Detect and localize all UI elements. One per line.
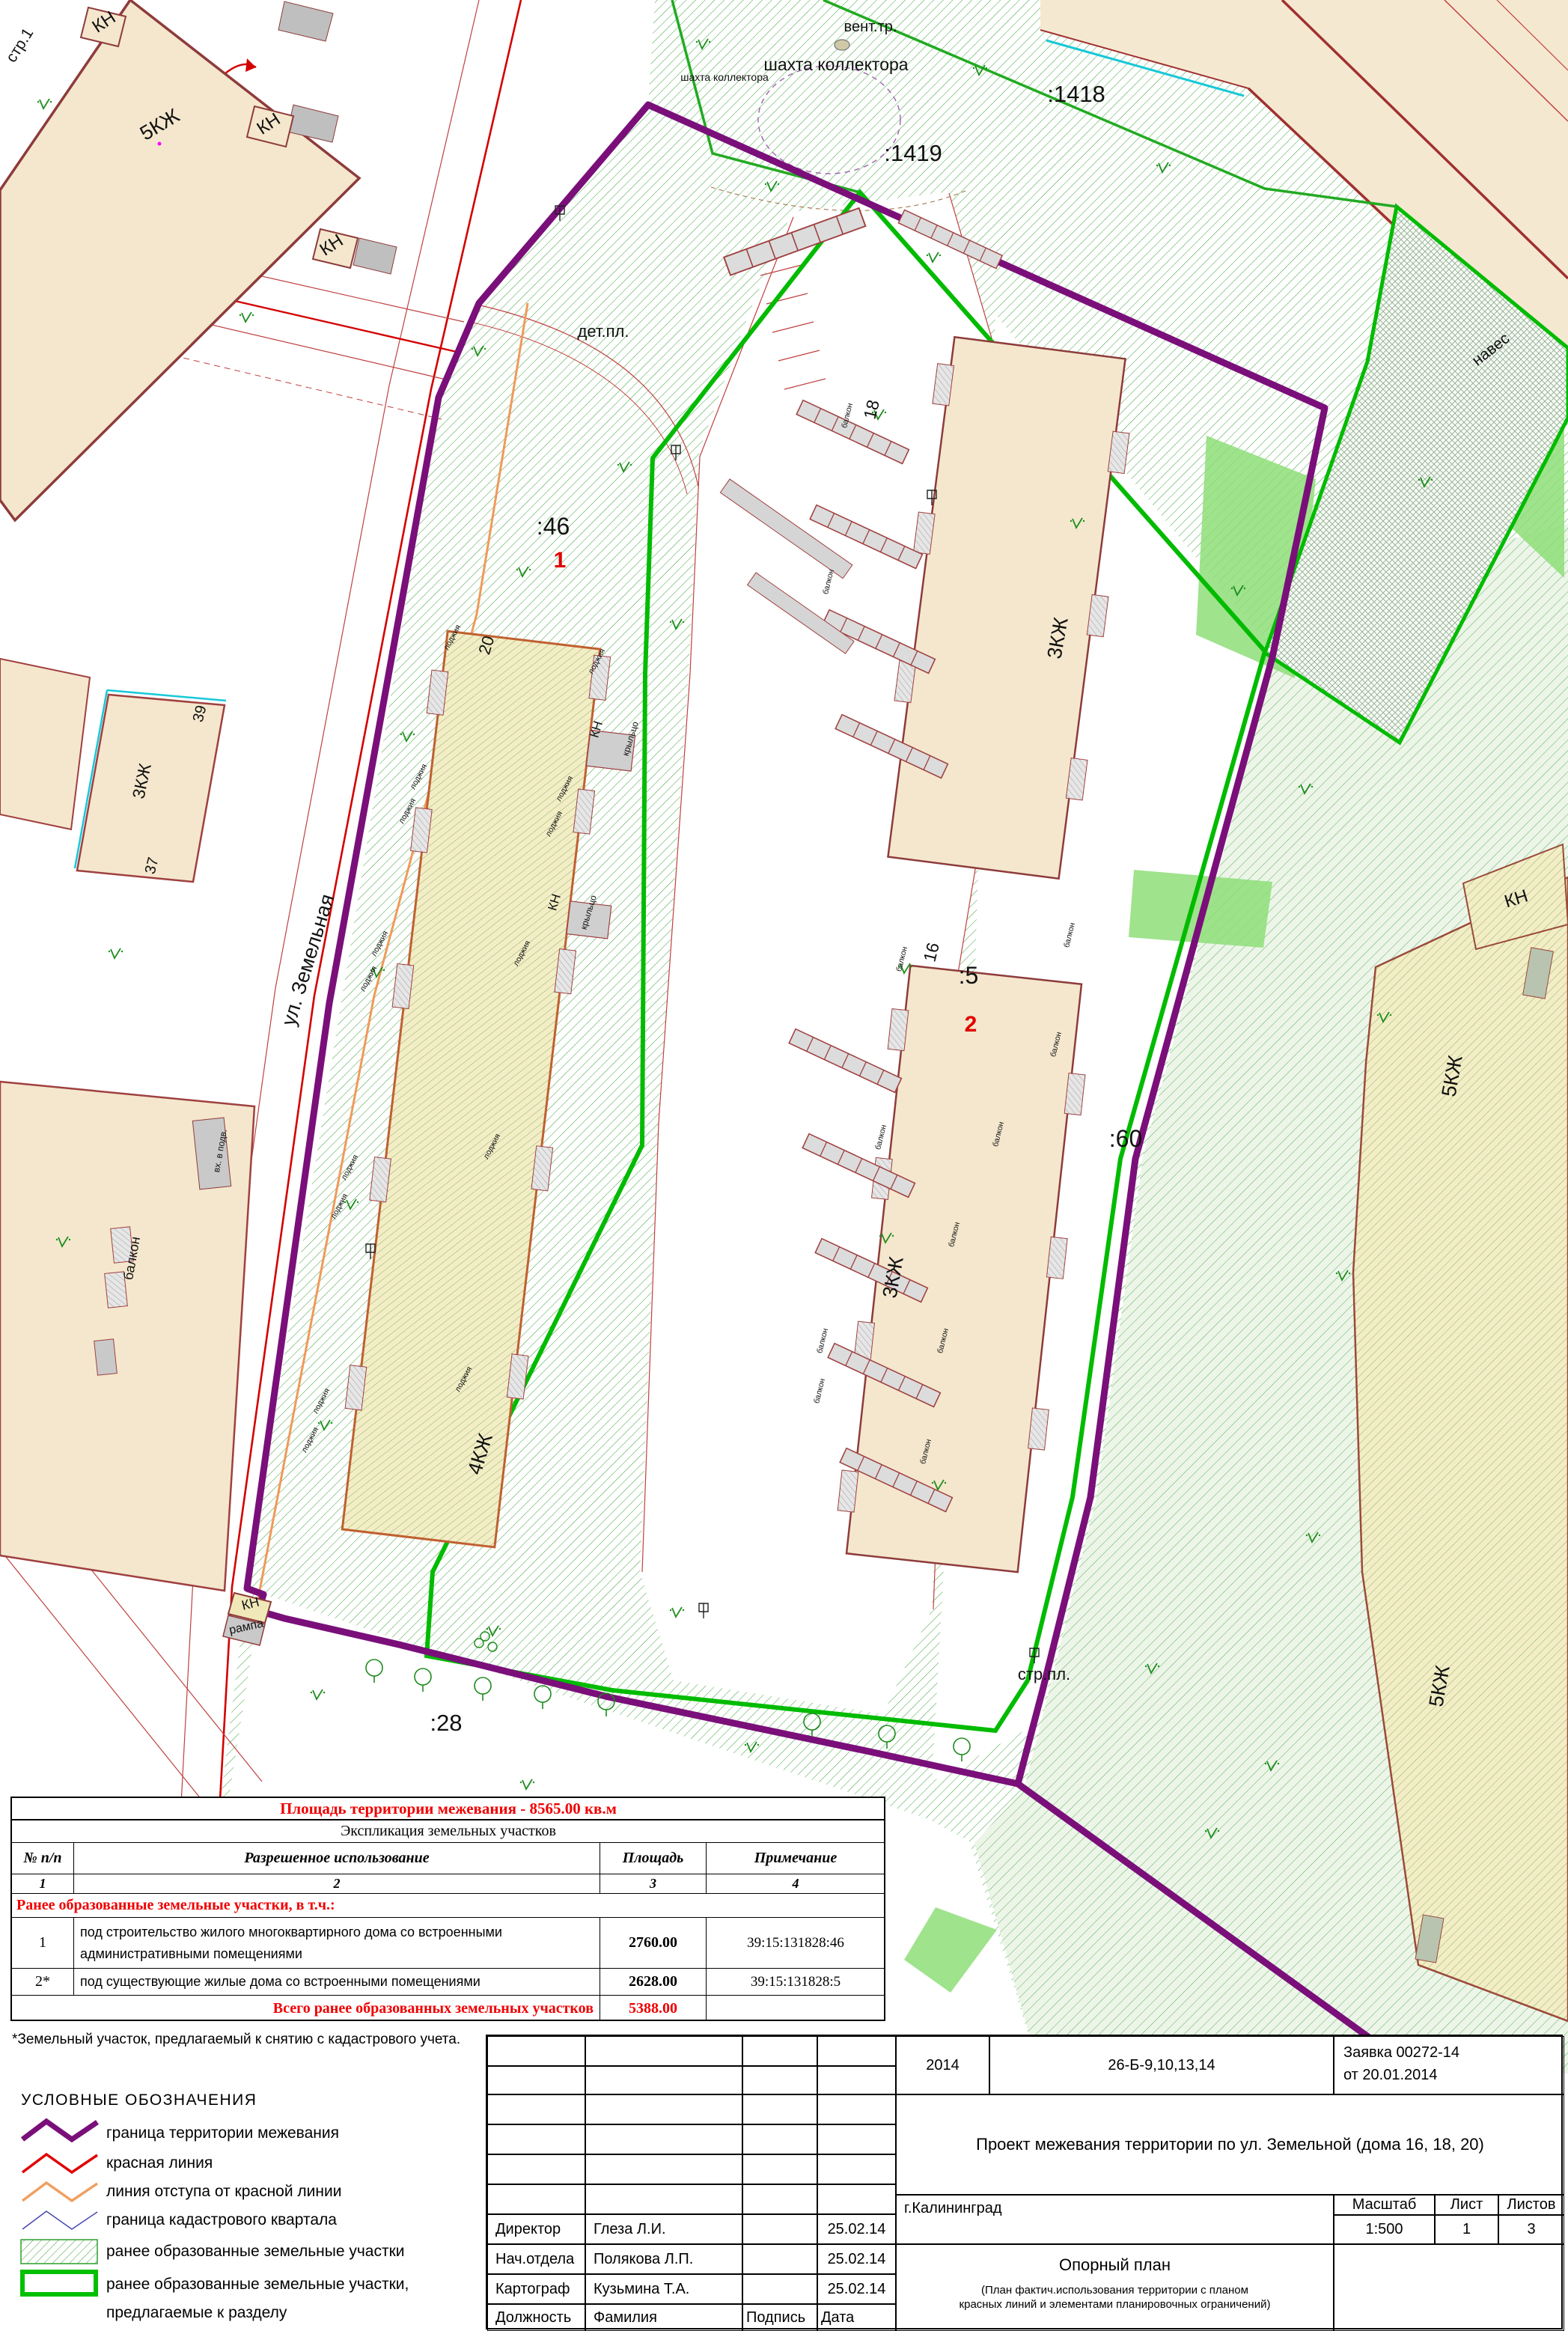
doc-sub2: красных линий и элементами планировочных… xyxy=(960,2298,1271,2312)
signer-name: Полякова Л.П. xyxy=(585,2244,742,2274)
row2-use: под существующие жилые дома со встроенны… xyxy=(74,1969,600,1996)
legend-item-division-plots: ранее образованные земельные участки, xyxy=(15,2268,479,2301)
tb-doc: Опорный план (План фактич.использования … xyxy=(896,2244,1334,2331)
footer-role: Должность xyxy=(487,2304,585,2331)
map-label: 2 xyxy=(965,1012,977,1037)
tb-empty xyxy=(817,2184,896,2214)
map-label: :5 xyxy=(959,962,979,989)
quarter-boundary-swatch xyxy=(19,2205,102,2235)
signer-role: Картограф xyxy=(487,2274,585,2304)
signer-name: Глеза Л.И. xyxy=(585,2214,742,2244)
legend-item-formed-plots: ранее образованные земельные участки xyxy=(15,2237,479,2267)
tb-empty xyxy=(585,2036,742,2066)
request-line2: от 20.01.2014 xyxy=(1343,2064,1438,2086)
footer-name: Фамилия xyxy=(585,2304,742,2331)
legend: УСЛОВНЫЕ ОБОЗНАЧЕНИЯ граница территории … xyxy=(15,2088,479,2331)
tb-empty xyxy=(487,2124,585,2154)
tb-empty xyxy=(817,2036,896,2066)
row1-note: 39:15:131828:46 xyxy=(707,1918,885,1969)
tb-code: 26-Б-9,10,13,14 xyxy=(989,2036,1334,2094)
legend-item-redline: красная линия xyxy=(15,2148,479,2178)
tb-empty xyxy=(585,2094,742,2124)
legend-title: УСЛОВНЫЕ ОБОЗНАЧЕНИЯ xyxy=(21,2091,257,2109)
signer-sign xyxy=(742,2274,817,2304)
row2-num: 2* xyxy=(12,1969,74,1996)
row1-num: 1 xyxy=(12,1918,74,1969)
tb-empty xyxy=(817,2094,896,2124)
total-label: Всего ранее образованных земельных участ… xyxy=(12,1996,600,2021)
row1-use: под строительство жилого многоквартирног… xyxy=(74,1918,600,1969)
signer-sign xyxy=(742,2214,817,2244)
cadastral-plan-sheet: { "map": { "labels": [ {"t":"стр.1","x":… xyxy=(0,0,1568,2331)
tb-empty xyxy=(742,2124,817,2154)
tb-empty xyxy=(585,2154,742,2184)
map-label: стр.пл. xyxy=(1018,1665,1070,1683)
map-label: стр.1 xyxy=(3,25,37,66)
tb-project-title: Проект межевания территории по ул. Земел… xyxy=(896,2094,1564,2195)
legend-item-setback: линия отступа от красной линии xyxy=(15,2177,479,2207)
tb-empty xyxy=(742,2154,817,2184)
legend-item-quarter: граница кадастрового квартала xyxy=(15,2205,479,2235)
land-plots-table: Площадь территории межевания - 8565.00 к… xyxy=(10,1797,885,2021)
col-num-3: 3 xyxy=(600,1874,707,1894)
col-header-area: Площадь xyxy=(600,1843,707,1874)
legend-item-territory: граница территории межевания xyxy=(15,2115,479,2151)
tb-empty xyxy=(487,2154,585,2184)
tb-sheets-value: 3 xyxy=(1498,2215,1564,2244)
signer-role: Директор xyxy=(487,2214,585,2244)
tb-sheet-label: Лист xyxy=(1435,2195,1498,2215)
signer-name: Кузьмина Т.А. xyxy=(585,2274,742,2304)
total-area: 5388.00 xyxy=(600,1996,707,2021)
signer-date: 25.02.14 xyxy=(817,2244,896,2274)
signer-date: 25.02.14 xyxy=(817,2274,896,2304)
tb-empty xyxy=(585,2184,742,2214)
signer-date: 25.02.14 xyxy=(817,2214,896,2244)
tb-empty xyxy=(487,2066,585,2094)
tb-empty xyxy=(742,2094,817,2124)
doc-sub1: (План фактич.использования территории с … xyxy=(981,2284,1248,2298)
map-label: дет.пл. xyxy=(578,322,629,341)
tb-request: Заявка 00272-14 от 20.01.2014 xyxy=(1334,2036,1564,2094)
request-line1: Заявка 00272-14 xyxy=(1343,2041,1459,2064)
tb-sheet-value: 1 xyxy=(1435,2215,1498,2244)
col-header-note: Примечание xyxy=(707,1843,885,1874)
territory-boundary-swatch xyxy=(19,2115,102,2145)
table-subtitle: Экспликация земельных участков xyxy=(12,1820,885,1843)
signer-sign xyxy=(742,2244,817,2274)
map-label: 1 xyxy=(554,548,567,573)
setback-line-swatch xyxy=(19,2177,102,2207)
table-footnote: *Земельный участок, предлагаемый к сняти… xyxy=(12,2032,460,2048)
map-label: :1419 xyxy=(884,140,942,166)
row1-area: 2760.00 xyxy=(600,1918,707,1969)
tb-scale-value: 1:500 xyxy=(1334,2215,1435,2244)
table-title: Площадь территории межевания - 8565.00 к… xyxy=(12,1798,885,1820)
section-row: Ранее образованные земельные участки, в … xyxy=(12,1894,885,1918)
map-label: вент.тр. xyxy=(844,19,897,35)
tb-empty xyxy=(585,2124,742,2154)
map-label: шахта коллектора xyxy=(680,71,769,83)
col-num-1: 1 xyxy=(12,1874,74,1894)
tb-sheets-label: Листов xyxy=(1498,2195,1564,2215)
footer-date: Дата xyxy=(817,2304,896,2331)
tb-empty xyxy=(817,2066,896,2094)
tb-empty xyxy=(585,2066,742,2094)
division-plots-swatch xyxy=(19,2268,102,2298)
tb-year: 2014 xyxy=(896,2036,989,2094)
legend-item-division-plots-line2: предлагаемые к разделу xyxy=(106,2304,287,2322)
tb-empty xyxy=(487,2094,585,2124)
map-label: :60 xyxy=(1109,1125,1142,1152)
footer-sign: Подпись xyxy=(742,2304,817,2331)
tb-empty xyxy=(742,2066,817,2094)
building-left-small xyxy=(0,659,90,829)
tb-empty xyxy=(817,2124,896,2154)
tb-empty xyxy=(817,2154,896,2184)
col-num-4: 4 xyxy=(707,1874,885,1894)
tb-empty xyxy=(742,2184,817,2214)
col-header-use: Разрешенное использование xyxy=(74,1843,600,1874)
signer-role: Нач.отдела xyxy=(487,2244,585,2274)
col-num-2: 2 xyxy=(74,1874,600,1894)
tb-scale-label: Масштаб xyxy=(1334,2195,1435,2215)
tb-empty xyxy=(487,2184,585,2214)
formed-plots-swatch xyxy=(19,2237,102,2267)
col-header-num: № п/п xyxy=(12,1843,74,1874)
map-label: :46 xyxy=(537,513,570,540)
doc-title: Опорный план xyxy=(1059,2255,1171,2275)
title-block: Директор Глеза Л.И. 25.02.14 Нач.отдела … xyxy=(486,2035,1563,2330)
total-empty xyxy=(707,1996,885,2021)
tb-empty xyxy=(487,2036,585,2066)
row2-area: 2628.00 xyxy=(600,1969,707,1996)
map-label: шахта коллектора xyxy=(763,55,908,74)
tb-empty xyxy=(742,2036,817,2066)
building-5kzh-topleft xyxy=(0,0,397,520)
tb-stamp-area xyxy=(1334,2244,1564,2331)
red-line-swatch xyxy=(19,2148,102,2178)
map-label: :28 xyxy=(430,1710,462,1736)
row2-note: 39:15:131828:5 xyxy=(707,1969,885,1996)
map-label: :1418 xyxy=(1047,81,1105,107)
tb-city: г.Калининград xyxy=(896,2195,1334,2244)
